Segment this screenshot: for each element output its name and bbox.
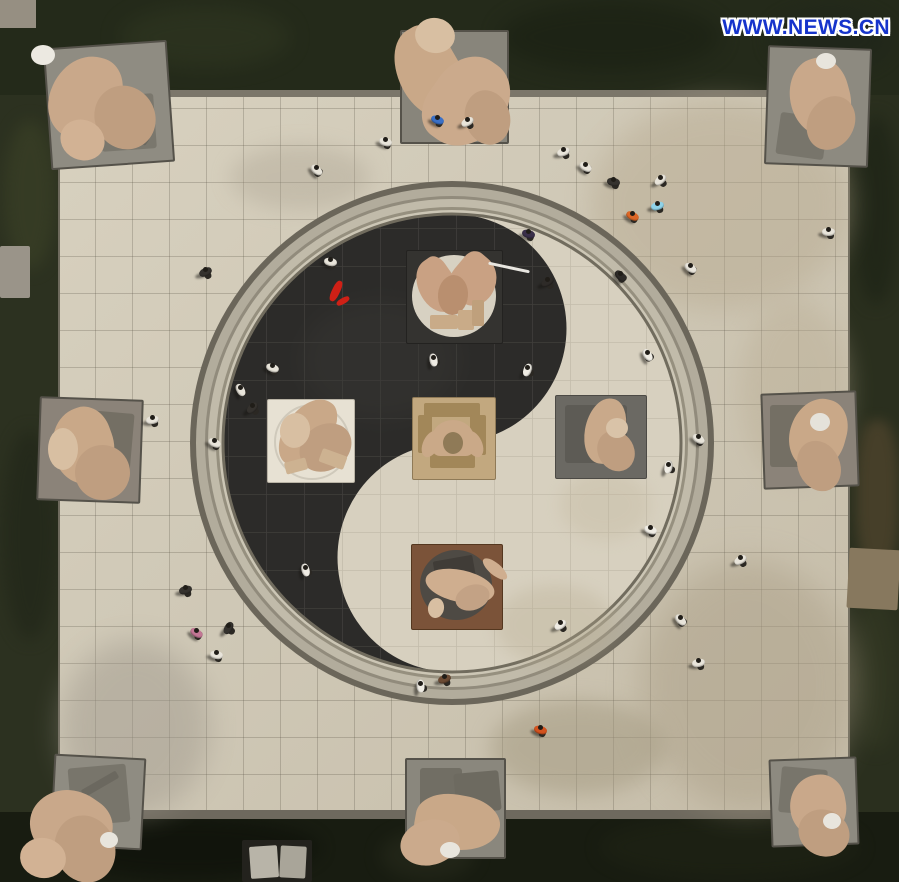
person xyxy=(377,134,393,150)
person-head xyxy=(183,585,188,590)
person xyxy=(220,620,236,636)
sculpture-ball xyxy=(440,842,460,858)
sculpture-edge-left xyxy=(48,428,78,470)
person-head xyxy=(826,227,831,232)
person-head xyxy=(526,229,531,234)
person xyxy=(188,625,204,641)
person xyxy=(429,112,445,128)
person-head xyxy=(238,385,243,390)
person-head xyxy=(611,177,616,182)
person-head xyxy=(203,267,208,272)
person-head xyxy=(314,165,319,170)
sculpture-ball xyxy=(606,418,628,438)
person xyxy=(532,722,548,738)
person xyxy=(649,198,665,214)
person xyxy=(612,268,628,284)
person-head xyxy=(383,137,388,142)
person-head xyxy=(648,525,653,530)
person-head xyxy=(194,628,199,633)
person-head xyxy=(431,355,436,360)
person-head xyxy=(618,271,623,276)
side-path-right xyxy=(846,548,899,611)
person-head xyxy=(630,211,635,216)
sculpture-ball xyxy=(100,832,118,848)
person-head xyxy=(525,365,530,370)
person-head xyxy=(212,438,217,443)
person xyxy=(642,522,658,538)
sculpture-hat xyxy=(31,45,55,65)
monument-stone xyxy=(249,845,279,879)
person xyxy=(322,254,338,270)
person xyxy=(436,671,452,687)
person xyxy=(552,617,568,633)
person-head xyxy=(270,363,275,368)
person xyxy=(412,678,428,694)
person xyxy=(682,260,698,276)
aerial-photo-taiji-plaza: WWW.NEWS.CN xyxy=(0,0,899,882)
person-head xyxy=(583,162,588,167)
person xyxy=(652,172,668,188)
person xyxy=(264,360,280,376)
news-watermark: WWW.NEWS.CN xyxy=(722,16,890,40)
person-head xyxy=(538,725,543,730)
sculpture-ball xyxy=(810,413,830,431)
person-head xyxy=(678,615,683,620)
person-head xyxy=(250,403,255,408)
person-head xyxy=(465,117,470,122)
person xyxy=(308,162,324,178)
person-head xyxy=(666,462,671,467)
person xyxy=(690,655,706,671)
person-head xyxy=(214,650,219,655)
person xyxy=(555,144,571,160)
person xyxy=(605,174,621,190)
person-head xyxy=(645,350,650,355)
person-head xyxy=(328,257,333,262)
person xyxy=(539,274,555,290)
person xyxy=(690,431,706,447)
person xyxy=(820,224,836,240)
person xyxy=(144,412,160,428)
person xyxy=(577,159,593,175)
person-head xyxy=(688,263,693,268)
stone-block xyxy=(430,315,458,329)
person-head xyxy=(696,434,701,439)
person xyxy=(297,562,313,578)
person xyxy=(624,208,640,224)
monument-stone xyxy=(279,845,307,878)
stone-block xyxy=(472,300,484,326)
sculpture-hat xyxy=(816,53,836,69)
person-head xyxy=(303,565,308,570)
person-head xyxy=(442,674,447,679)
person-head xyxy=(226,623,231,628)
sculpture-ball xyxy=(823,813,841,829)
person-head xyxy=(738,555,743,560)
person-head xyxy=(150,415,155,420)
person-head xyxy=(658,175,663,180)
person xyxy=(425,352,441,368)
person-head xyxy=(561,147,566,152)
person xyxy=(206,435,222,451)
disc-stain-light xyxy=(560,470,650,540)
person xyxy=(672,612,688,628)
person xyxy=(519,362,535,378)
person xyxy=(459,114,475,130)
person-head xyxy=(655,201,660,206)
person xyxy=(208,647,224,663)
person-head xyxy=(558,620,563,625)
person xyxy=(732,552,748,568)
person-head xyxy=(418,681,423,686)
sculpture-center-hole xyxy=(443,432,463,454)
person xyxy=(197,264,213,280)
person xyxy=(177,582,193,598)
person-head xyxy=(545,277,550,282)
person xyxy=(244,400,260,416)
person xyxy=(232,382,248,398)
person xyxy=(660,459,676,475)
person xyxy=(639,347,655,363)
person-head xyxy=(435,115,440,120)
person xyxy=(520,226,536,242)
person-head xyxy=(696,658,701,663)
